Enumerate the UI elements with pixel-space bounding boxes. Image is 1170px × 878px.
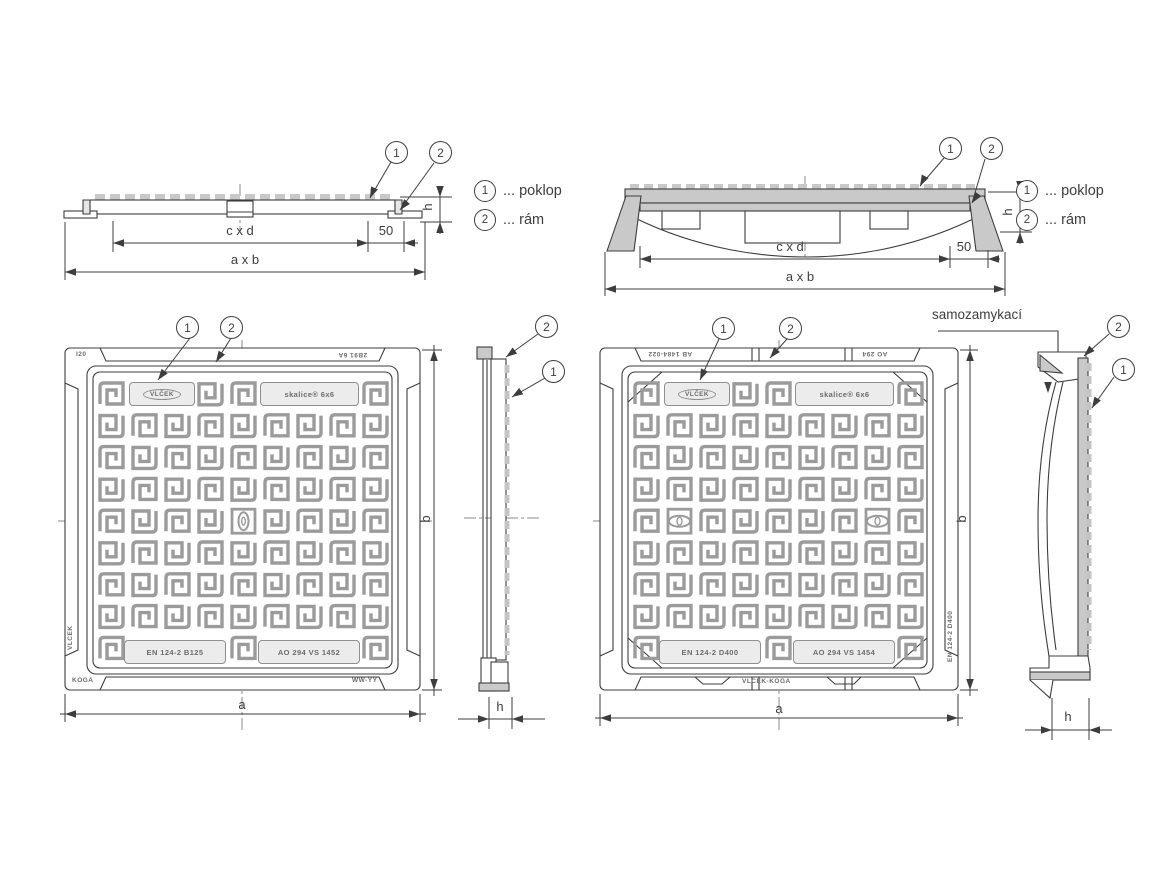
dim-h-side-d400: h [1058,710,1078,724]
arrowhead [504,347,517,360]
lock-cell [866,509,889,533]
arrowhead [1044,382,1052,393]
legend-right-poklop: 1 ... poklop [1016,180,1104,202]
arrowhead [1041,726,1052,734]
arrowhead [113,239,124,247]
arrowhead [409,710,420,718]
dim-cxd-d400: c x d [745,240,835,254]
frame-mark-top-right-b125: 2B91 6A [338,351,367,358]
arrowhead [430,679,438,690]
callout-1-side-b125: 1 [542,360,565,383]
cert-plate-d400: AO 294 VS 1454 [793,640,895,664]
callout-2-side-b125: 2 [535,315,558,338]
top-view-d400 [600,348,958,690]
dim-h-d400: h [1001,204,1015,220]
arrowhead [966,679,974,690]
callout-2-top-b125: 2 [220,316,243,339]
callout-1-side-d400: 1 [1112,358,1135,381]
cross-section-b125 [64,197,422,218]
callout-1-cross-b125: 1 [385,141,408,164]
frame-mark-top-right-d400: AO 294 [862,350,887,357]
frame-mark-top-left-b125: I20 [76,351,87,358]
lock-cell [668,509,691,533]
dim-h-b125: h [421,199,435,215]
callout-1-top-b125: 1 [176,316,199,339]
cert-plate-b125: AO 294 VS 1452 [258,640,360,664]
arrowhead [357,239,368,247]
arrowhead [512,715,523,723]
callout-2-side-d400: 2 [1107,315,1130,338]
arrowhead [430,350,438,361]
arrowhead [65,710,76,718]
arrowhead [478,715,489,723]
arrowhead [436,186,444,197]
legend-circle-1: 1 [1016,180,1038,202]
product-plate-d400: skalice® 6x6 [795,382,894,406]
legend-right-ram: 2 ... rám [1016,209,1086,231]
legend-label-poklop: ... poklop [1045,183,1104,199]
arrowhead [1016,232,1024,243]
dim-a-d400: a [759,702,799,716]
callout-1-cross-d400: 1 [939,137,962,160]
legend-circle-1: 1 [474,180,496,202]
legend-circle-2: 2 [474,209,496,231]
frame-mark-side-b125: VLCEK [67,625,74,650]
legend-label-poklop: ... poklop [503,183,562,199]
legend-circle-2: 2 [1016,209,1038,231]
callout-2-cross-b125: 2 [429,141,452,164]
callout-2-top-d400: 2 [779,317,802,340]
product-plate-b125: skalice® 6x6 [260,382,359,406]
dim-cxd-b125: c x d [195,224,285,238]
logo-plate-d400: VLČEK [664,382,730,406]
frame-mark-top-left-d400: AB 1484-022 [648,350,692,357]
arrowhead [65,268,76,276]
legend-left-poklop: 1 ... poklop [474,180,562,202]
frame-mark-bottom-right-b125: WW-YY [352,677,377,684]
logo-plate-b125: VLČEK [129,382,195,406]
arrowhead [939,255,950,263]
frame-mark-bottom-left-b125: KOGA [72,677,94,684]
dim-axb-d400: a x b [755,270,845,284]
arrowhead [988,255,999,263]
selflocking-label: samozamykací [932,307,1022,322]
arrowhead [947,714,958,722]
side-view-b125 [477,347,509,691]
dim-b-d400: b [955,511,969,527]
frame-mark-bottom-d400: VLCEK-KOGA [742,678,791,685]
standard-plate-b125: EN 124-2 B125 [124,640,226,664]
legend-label-ram: ... rám [1045,212,1086,228]
arrowhead [640,255,651,263]
legend-left-ram: 2 ... rám [474,209,544,231]
arrowhead [966,350,974,361]
dim-a-b125: a [222,698,262,712]
callout-1-top-d400: 1 [712,317,735,340]
technical-drawing-sheet: c x d 50 a x b h 1 2 1 ... poklop 2 ... … [0,0,1170,878]
maker-logo: VLČEK [678,389,716,400]
arrowhead [1089,726,1100,734]
top-view-b125 [65,348,420,690]
arrowhead [436,222,444,233]
arrowhead [404,239,415,247]
callout-2-cross-d400: 2 [980,137,1003,160]
dim-b-b125: b [419,511,433,527]
legend-label-ram: ... rám [503,212,544,228]
frame-mark-side-d400: EN 124-2 D400 [947,611,954,662]
standard-plate-d400: EN 124-2 D400 [659,640,761,664]
dim-50-b125: 50 [372,224,400,238]
arrowhead [600,714,611,722]
arrowhead [994,285,1005,293]
line-art [0,0,1170,878]
lift-hole-cell [232,509,255,533]
dim-h-side-b125: h [490,700,510,714]
maker-logo: VLČEK [143,389,181,400]
arrowhead [510,388,523,400]
arrowhead [414,268,425,276]
dim-50-d400: 50 [948,240,980,254]
arrowhead [605,285,616,293]
dim-axb-b125: a x b [200,253,290,267]
